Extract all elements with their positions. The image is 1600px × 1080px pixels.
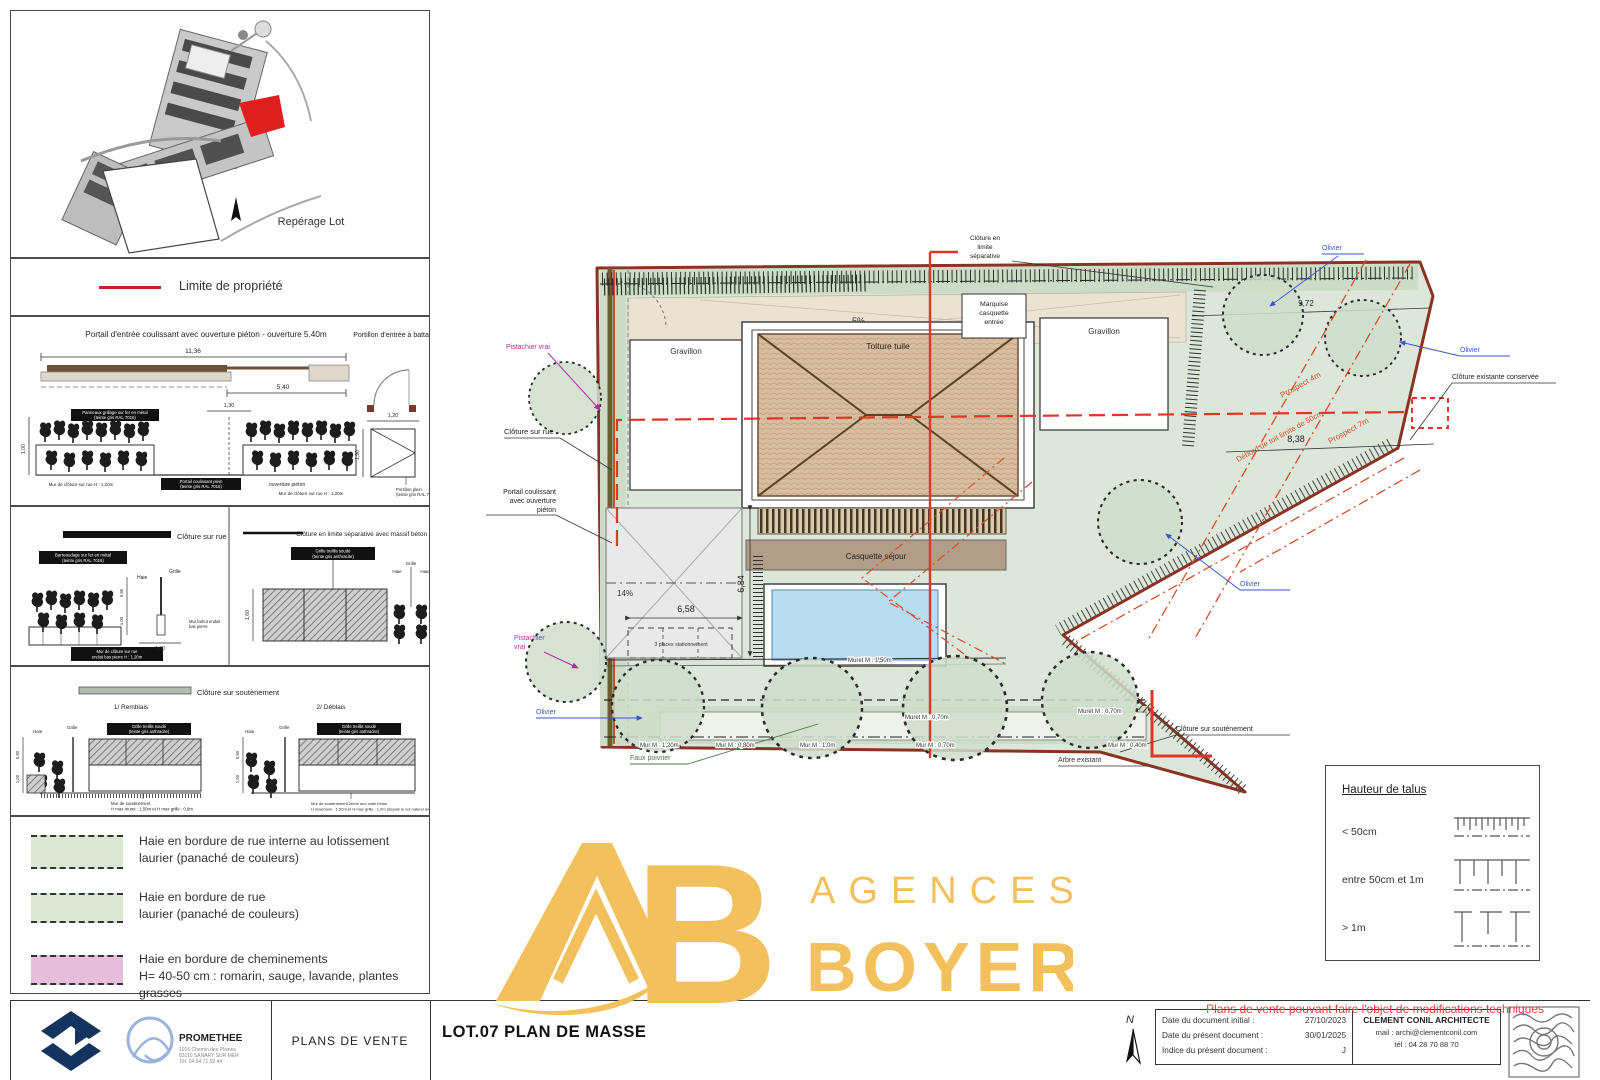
sout-dim2: 1,00 bbox=[15, 774, 20, 783]
gravillon-right-label: Gravillon bbox=[1088, 327, 1120, 336]
clotures-drawing: Clôture sur rue Barreaudage sur fer en m… bbox=[11, 507, 429, 665]
north-arrow-icon bbox=[231, 197, 241, 221]
plans-de-vente-cell: PLANS DE VENTE bbox=[270, 1001, 431, 1080]
sout-note1b: (teinte gris anthracite) bbox=[129, 729, 170, 734]
haie-label-3: Haie en bordure de cheminements H= 40-50… bbox=[139, 951, 429, 1002]
dim-h: 1,00 bbox=[21, 444, 27, 454]
dim-658: 6,58 bbox=[677, 604, 695, 614]
plans-de-vente-label: PLANS DE VENTE bbox=[292, 1034, 409, 1048]
haie-label-2: Haie en bordure de rue laurier (panaché … bbox=[139, 889, 299, 923]
mur-label-5: Mur M : 0,70m bbox=[916, 743, 955, 749]
cr-note-bottom: Mur de clôture sur rue bbox=[97, 649, 139, 654]
pool bbox=[772, 590, 938, 660]
cr-note-right2: bas pierre bbox=[189, 624, 208, 629]
cs-grille: Grille bbox=[406, 561, 417, 566]
faux-poivrier-label: Faux poivrier bbox=[630, 755, 671, 762]
portail-l1: Portail coulissant bbox=[503, 489, 556, 496]
toiture-label: Toiture tuile bbox=[866, 341, 910, 351]
haie-row-3: Haie en bordure de cheminements H= 40-50… bbox=[11, 947, 429, 989]
haie-row-2: Haie en bordure de rue laurier (panaché … bbox=[11, 889, 429, 931]
house: Toiture tuile bbox=[742, 322, 1034, 508]
limite-line-swatch bbox=[99, 286, 161, 289]
soutenement-panel: Clôture sur soutènement 1/ Remblais 2/ D… bbox=[10, 666, 430, 816]
sout-haie1: Haie bbox=[33, 729, 43, 734]
date-present-value: 30/01/2025 bbox=[1305, 1028, 1346, 1043]
sout-grille2: Grille bbox=[279, 725, 290, 730]
sout-left: Haie Grille Grille treillis soudé (teint… bbox=[15, 723, 201, 812]
sout-mur2b: H maximum : 1,50m et H max grille : 1,0m… bbox=[311, 807, 429, 812]
reperage-label: Repérage Lot bbox=[278, 216, 345, 228]
mur-label-3: Mur M : 0,80m bbox=[716, 743, 755, 749]
portillon-title: Portillon d'entrée à battant bbox=[353, 332, 429, 339]
reperage-panel: Repérage Lot bbox=[10, 10, 430, 258]
sout-dim1: 0,90 bbox=[15, 750, 20, 759]
dim-total: 11,36 bbox=[185, 348, 201, 355]
portail-drawing: Portail d'entrée coulissant avec ouvertu… bbox=[11, 317, 429, 505]
mur-label-4: Mur M : 1,0m bbox=[800, 743, 835, 749]
haie-swatch-1 bbox=[31, 835, 123, 869]
note-mur-right: Mur de clôture sur rue H : 1,20m bbox=[279, 491, 344, 496]
haie-swatch-3 bbox=[31, 955, 123, 985]
cr-grille: Grille bbox=[169, 569, 181, 575]
pistachier-bot-l2: vrai bbox=[514, 644, 526, 651]
cloture-sep-legend: Clôture en limite séparative avec massif… bbox=[296, 531, 427, 538]
dim-838: 8,38 bbox=[1287, 434, 1305, 444]
olivier-label-d: Olivier bbox=[1240, 581, 1261, 588]
sout-sub1: 1/ Remblais bbox=[114, 704, 149, 711]
sout-mur2a: Mur de soutènement 2ème mur voile béton bbox=[311, 801, 387, 806]
marquise-l3: entrée bbox=[984, 319, 1003, 326]
sheet-title: LOT.07 PLAN DE MASSE bbox=[442, 1023, 646, 1042]
cs-note2: (teinte gris anthracite) bbox=[312, 554, 354, 559]
note-portail2: (teinte gris RAL 7016) bbox=[180, 484, 222, 489]
cr-dimw: 1,00 bbox=[155, 646, 165, 652]
talus-title: Hauteur de talus bbox=[1342, 784, 1426, 796]
cs-haie1: Haie bbox=[392, 569, 402, 574]
architect-cell: CLEMENT CONIL ARCHITECTE mail : archi@cl… bbox=[1353, 1009, 1501, 1065]
clotures-panel: Clôture sur rue Barreaudage sur fer en m… bbox=[10, 506, 430, 666]
logos-cell: PROMETHEE 1016 Chemin des Plaines 83110 … bbox=[10, 1001, 272, 1080]
portail-title: Portail d'entrée coulissant avec ouvertu… bbox=[85, 330, 327, 339]
note-grille2: (teinte gris RAL 7016) bbox=[94, 415, 136, 420]
slope-drive-label: 14% bbox=[617, 589, 633, 598]
date-present-row: Date du présent document : 30/01/2025 bbox=[1156, 1028, 1352, 1043]
sout-right: Haie Grille Grille treillis soudé (teint… bbox=[235, 723, 429, 812]
note-mur-left: Mur de clôture sur rue H : 1,20m bbox=[49, 482, 114, 487]
pistachier-bot-l1: Pistachier bbox=[514, 635, 545, 642]
cloture-rue-legend: Clôture sur rue bbox=[177, 532, 227, 541]
cs-dim: 1,60 bbox=[245, 610, 251, 620]
note-ouverture: ouverture piéton bbox=[269, 482, 305, 488]
addr-3: Tél. 04 94 71 58 44 bbox=[179, 1059, 239, 1065]
haie-swatch-2 bbox=[31, 893, 123, 923]
cs-note: Grille treillis soudé bbox=[315, 549, 351, 554]
haie-2-l1: Haie en bordure de rue bbox=[139, 889, 299, 906]
soutenement-drawing: Clôture sur soutènement 1/ Remblais 2/ D… bbox=[11, 667, 429, 815]
talus-legend: Hauteur de talus < 50cm entre 50cm et 1m… bbox=[1325, 765, 1540, 961]
sout-mur1b: H max muret : 1,50m et H max grille : 0,… bbox=[111, 807, 193, 812]
mur-label-0: Muret M : 1,50m bbox=[848, 658, 892, 664]
haie-3-l1: Haie en bordure de cheminements bbox=[139, 951, 429, 968]
cloture-existante-label: Clôture existante conservée bbox=[1452, 374, 1539, 381]
haie-1-l2: laurier (panaché de couleurs) bbox=[139, 850, 389, 867]
casquette-label: Casquette séjour bbox=[846, 552, 907, 561]
dim-pieton: 1,30 bbox=[224, 403, 235, 409]
portillon-dim-h: 1,90 bbox=[355, 450, 361, 460]
haies-legend-panel: Haie en bordure de rue interne au lotiss… bbox=[10, 816, 430, 994]
ab-logo-b: B bbox=[634, 833, 778, 1023]
plan-sheet: Repérage Lot Limite de propriété Portail… bbox=[0, 0, 1600, 1080]
portail-l2: avec ouverture bbox=[510, 498, 556, 505]
cr-dim1: 0,90 bbox=[119, 588, 124, 597]
mur-label-7: Mur M : 0,40m bbox=[1108, 743, 1147, 749]
titlebar-north-icon: N bbox=[1118, 1011, 1148, 1069]
promethee-address: 1016 Chemin des Plaines 83110 SANARY SUR… bbox=[179, 1047, 239, 1065]
marquise-l2: casquette bbox=[979, 310, 1009, 317]
limite-panel: Limite de propriété bbox=[10, 258, 430, 316]
cloture-rue-label: Clôture sur rue bbox=[504, 427, 554, 436]
dim-684: 6,84 bbox=[736, 575, 746, 593]
pistachier-top-label: Pistachier vrai bbox=[506, 344, 550, 351]
gravillon-left-label: Gravillon bbox=[670, 347, 702, 356]
sout-grille1: Grille bbox=[67, 725, 78, 730]
dates-cell: Date du document initial : 27/10/2023 Da… bbox=[1155, 1009, 1353, 1065]
clsep-l1: Clôture en bbox=[970, 235, 1000, 242]
promethee-logo-icon bbox=[31, 1009, 111, 1073]
promethee-name: PROMETHEE bbox=[179, 1033, 242, 1044]
sout-note2b: (teinte gris anthracite) bbox=[339, 729, 380, 734]
portail-panel: Portail d'entrée coulissant avec ouvertu… bbox=[10, 316, 430, 506]
sout-mur1a: Mur de soutènement bbox=[111, 801, 151, 806]
watermark-boyer: BOYER bbox=[806, 928, 1073, 1006]
clsep-l2: limite bbox=[977, 244, 993, 251]
haie-row-1: Haie en bordure de rue interne au lotiss… bbox=[11, 831, 429, 873]
portail-l3: piéton bbox=[537, 507, 556, 514]
ab-logo-icon: B bbox=[492, 833, 778, 1023]
haie-3-l2: H= 40-50 cm : romarin, sauge, lavande, p… bbox=[139, 968, 429, 1002]
north-letter: N bbox=[1126, 1014, 1134, 1026]
cr-haie: Haie bbox=[137, 575, 148, 581]
portillon-note2: (teinte gris RAL 7016) bbox=[396, 492, 429, 497]
haie-label-1: Haie en bordure de rue interne au lotiss… bbox=[139, 833, 389, 867]
olivier-label-c: Olivier bbox=[1460, 347, 1481, 354]
parking-label: 3 places stationnement bbox=[654, 642, 708, 648]
cr-note-top2: (teinte gris RAL 7016) bbox=[62, 558, 104, 563]
indice-value: J bbox=[1342, 1043, 1346, 1058]
talus-row-1: < 50cm bbox=[1342, 826, 1377, 838]
arbre-existant-label: Arbre existant bbox=[1058, 757, 1101, 764]
portillon-dim-w: 1,20 bbox=[388, 413, 399, 419]
parking-area: 3 places stationnement 14% bbox=[606, 508, 742, 658]
dim-972: 9,72 bbox=[1298, 299, 1314, 308]
haie-1-l1: Haie en bordure de rue interne au lotiss… bbox=[139, 833, 389, 850]
cs-haie2: Haie bbox=[420, 569, 429, 574]
signature-icon bbox=[115, 1005, 185, 1075]
stamp-icon bbox=[1508, 1006, 1580, 1078]
cr-note-top: Barreaudage sur fer en métal bbox=[55, 553, 111, 558]
agences-boyer-watermark: B AGENCES BOYER bbox=[488, 833, 1073, 1023]
indice-label: Indice du présent document : bbox=[1162, 1043, 1268, 1058]
architect-mail: mail : archi@clementconil.com bbox=[1353, 1028, 1500, 1037]
talus-symbols bbox=[1454, 812, 1530, 952]
talus-row-3: > 1m bbox=[1342, 922, 1366, 934]
watermark-agences: AGENCES bbox=[810, 870, 1073, 912]
reperage-map: Repérage Lot bbox=[11, 11, 429, 257]
indice-row: Indice du présent document : J bbox=[1156, 1043, 1352, 1058]
sout-dim3: 0,90 bbox=[235, 750, 240, 759]
architect-tel: tél : 04 28 70 88 70 bbox=[1353, 1040, 1500, 1049]
cr-note-bottom2: enduit bas pierre H : 1,20m bbox=[92, 655, 143, 660]
sout-dim4: 1,00 bbox=[235, 774, 240, 783]
cloture-sout-label: Clôture sur soutènement bbox=[1176, 726, 1253, 733]
cr-dim2: 1,00 bbox=[119, 616, 124, 625]
gate-leaf bbox=[47, 365, 227, 372]
talus-row-2: entre 50cm et 1m bbox=[1342, 874, 1424, 886]
olivier-label-a: Olivier bbox=[536, 709, 557, 716]
olivier-label-b: Olivier bbox=[1322, 245, 1343, 252]
limite-label: Limite de propriété bbox=[179, 279, 283, 293]
architect-name: CLEMENT CONIL ARCHITECTE bbox=[1353, 1015, 1500, 1025]
modification-notice: Plans de vente pouvant faire l'objet de … bbox=[1206, 1002, 1544, 1016]
sout-legend: Clôture sur soutènement bbox=[197, 688, 280, 697]
sout-haie2: Haie bbox=[245, 729, 255, 734]
gravel-left bbox=[630, 340, 742, 490]
mur-label-6: Muret M : 0,70m bbox=[1078, 709, 1122, 715]
clsep-l3: séparative bbox=[970, 253, 1000, 260]
cs-hedge bbox=[394, 604, 428, 644]
marquise-l1: Marquise bbox=[980, 301, 1008, 308]
date-present-label: Date du présent document : bbox=[1162, 1028, 1263, 1043]
sout-sub2: 2/ Déblais bbox=[317, 704, 347, 711]
mur-label-2: Mur M : 1,20m bbox=[640, 743, 679, 749]
dim-open: 5,40 bbox=[277, 384, 290, 391]
haie-2-l2: laurier (panaché de couleurs) bbox=[139, 906, 299, 923]
mur-label-1: Muret M : 0,70m bbox=[905, 715, 949, 721]
site-plan: 5% Gravillon Gravillon Toiture tuile Mar… bbox=[480, 215, 1590, 800]
